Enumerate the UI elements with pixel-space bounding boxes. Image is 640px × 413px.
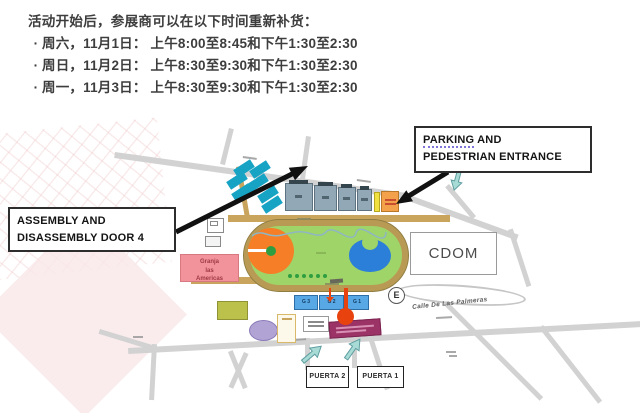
notice-item-sunday: ·周日，11月2日： 上午8:30至9:30和下午1:30至2:30 xyxy=(30,54,358,74)
red-marker-dot xyxy=(337,308,354,325)
infield-dot xyxy=(309,274,313,278)
purple-ellipse-building xyxy=(249,320,278,341)
cream-building xyxy=(277,314,296,343)
small-label-box xyxy=(303,316,329,332)
bullet-icon: · xyxy=(30,80,42,95)
notice-item-saturday: ·周六，11月1日： 上午8:00至8:45和下午1:30至2:30 xyxy=(30,32,358,52)
infield-dot xyxy=(288,274,292,278)
notice-item-monday: ·周一，11月3日： 上午8:30至9:30和下午1:30至2:30 xyxy=(30,76,358,96)
road-label-blur xyxy=(446,351,456,353)
yellow-strip-building xyxy=(374,192,380,212)
notice-title: 活动开始后，参展商可以在以下时间重新补货： xyxy=(28,10,318,30)
infield-dot xyxy=(302,274,306,278)
assembly-callout-line1: ASSEMBLY AND xyxy=(17,213,167,230)
puerta-2-label: PUERTA 2 xyxy=(306,366,349,388)
road-label-blur xyxy=(357,179,371,183)
bullet-icon: · xyxy=(30,36,42,51)
document-page: 活动开始后，参展商可以在以下时间重新补货： ·周六，11月1日： 上午8:00至… xyxy=(0,0,640,413)
road-segment xyxy=(443,301,543,401)
cdom-building: CDOM xyxy=(410,232,497,275)
puerta-1-label: PUERTA 1 xyxy=(357,366,404,388)
hall-g3: G 3 xyxy=(294,295,318,310)
olive-building xyxy=(217,301,248,320)
road-label-blur xyxy=(133,336,143,338)
road-segment xyxy=(539,325,602,404)
bullet-icon: · xyxy=(30,58,42,73)
infield-pond-notch xyxy=(362,235,378,250)
red-marker-line-small xyxy=(329,288,331,297)
parking-callout-arrow xyxy=(390,168,460,213)
exhibit-hall xyxy=(357,189,372,211)
e-road-badge: E xyxy=(388,287,405,304)
parking-callout-line1: PARKING AND xyxy=(423,132,583,149)
road-segment xyxy=(128,321,640,354)
infield-tiny-label xyxy=(316,252,326,254)
road-label-blur xyxy=(449,355,457,357)
red-arrowhead-icon xyxy=(326,297,334,302)
parking-callout: PARKING AND PEDESTRIAN ENTRANCE xyxy=(414,126,592,173)
infield-green-dot xyxy=(266,246,276,256)
infield-dot xyxy=(316,274,320,278)
infield-dot xyxy=(295,274,299,278)
assembly-callout-arrow xyxy=(170,160,315,245)
road-segment xyxy=(508,228,531,287)
exhibit-hall xyxy=(338,187,356,211)
parking-callout-line2: PEDESTRIAN ENTRANCE xyxy=(423,149,583,166)
road-label-blur xyxy=(436,316,452,319)
assembly-callout-line2: DISASSEMBLY DOOR 4 xyxy=(17,230,167,247)
entrance-arrow-icon xyxy=(299,342,325,367)
exhibit-hall xyxy=(314,185,337,211)
granja-las-americas-building: Granja las Americas xyxy=(180,254,239,282)
infield-dot xyxy=(323,274,327,278)
assembly-callout: ASSEMBLY AND DISASSEMBLY DOOR 4 xyxy=(8,207,176,252)
